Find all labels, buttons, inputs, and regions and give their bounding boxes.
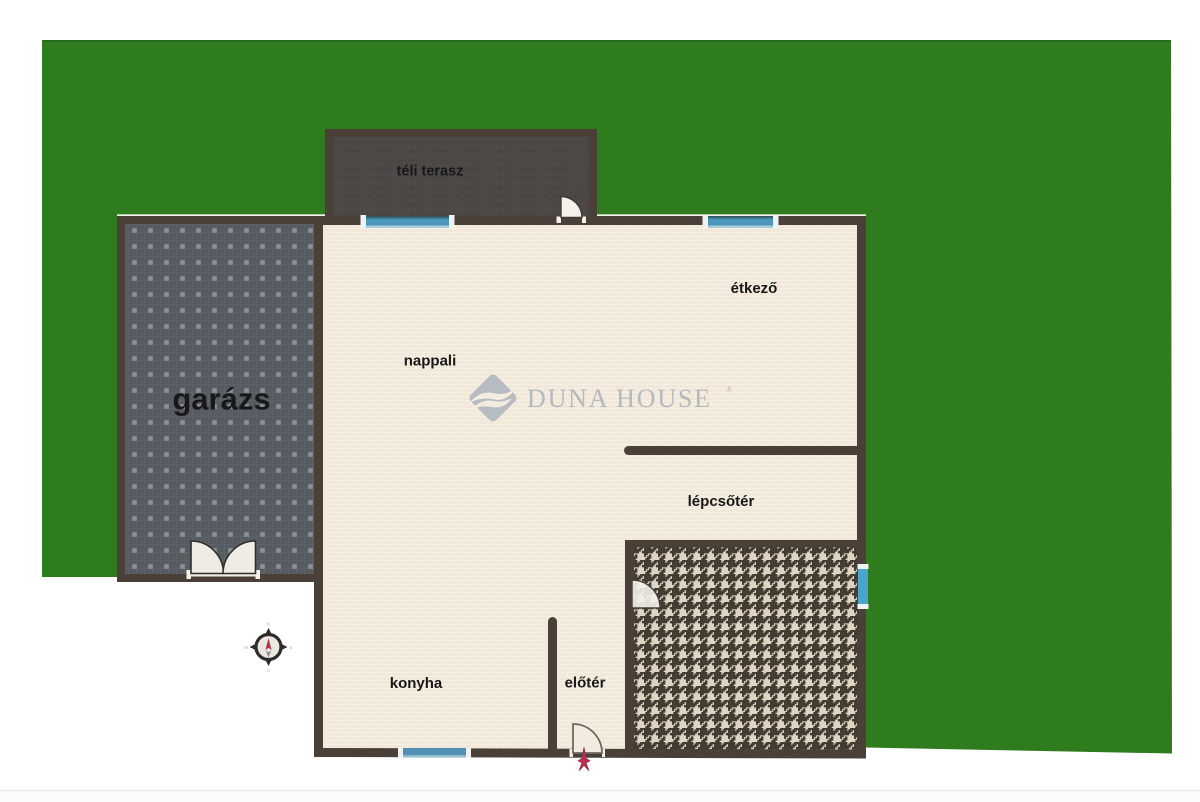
svg-text:téli terasz: téli terasz: [397, 164, 464, 180]
svg-text:E: E: [289, 645, 292, 650]
svg-text:®: ®: [726, 385, 732, 394]
svg-text:konyha: konyha: [390, 675, 443, 692]
svg-text:lépcsőtér: lépcsőtér: [688, 493, 755, 510]
svg-text:S: S: [267, 668, 270, 673]
svg-text:nappali: nappali: [404, 353, 457, 370]
svg-text:előtér: előtér: [565, 675, 606, 692]
svg-text:DUNA HOUSE: DUNA HOUSE: [527, 384, 712, 413]
svg-text:garázs: garázs: [172, 382, 270, 417]
svg-text:étkező: étkező: [731, 280, 778, 297]
svg-text:N: N: [267, 622, 270, 627]
